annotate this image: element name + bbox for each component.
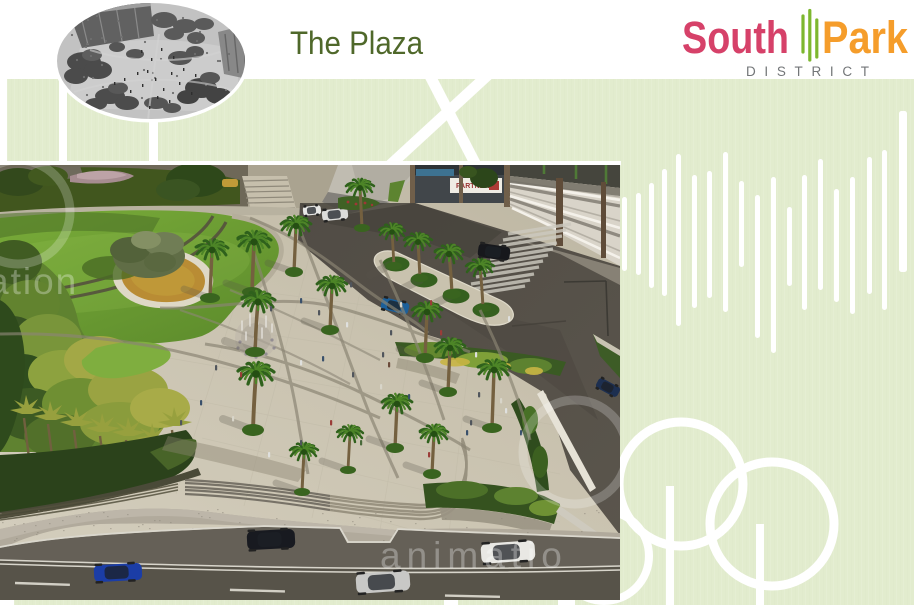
- svg-text:animatio: animatio: [380, 535, 568, 576]
- svg-text:Park: Park: [822, 12, 909, 63]
- svg-text:DISTRICT: DISTRICT: [746, 64, 869, 79]
- svg-text:ation: ation: [0, 261, 78, 302]
- svg-text:The Plaza: The Plaza: [290, 25, 423, 61]
- svg-text:South: South: [682, 12, 789, 63]
